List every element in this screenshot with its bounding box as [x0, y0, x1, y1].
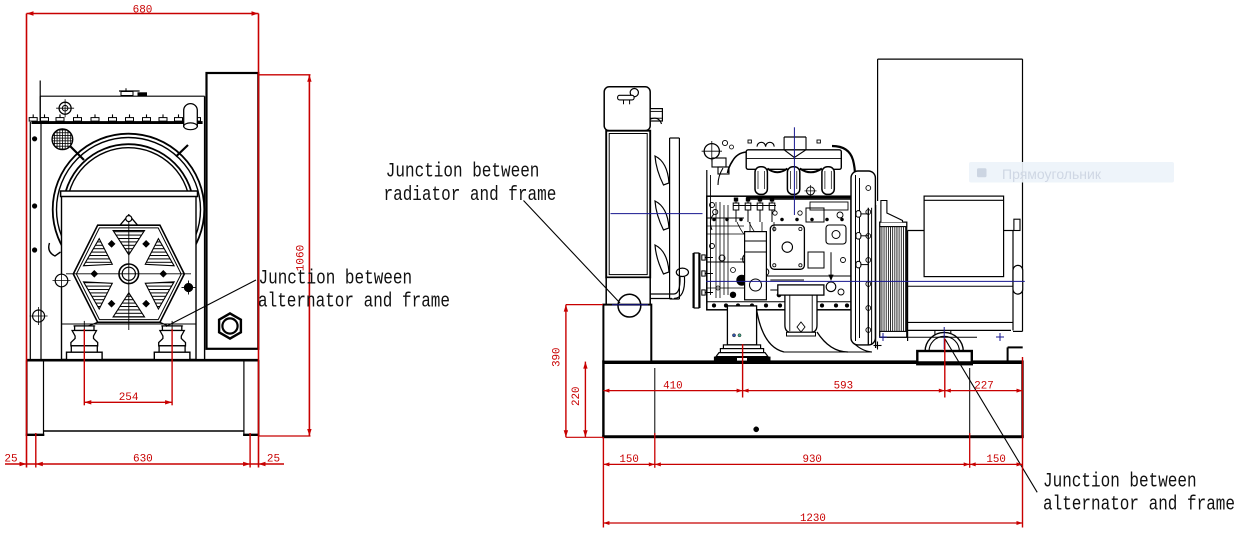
svg-text:680: 680 — [133, 4, 153, 16]
svg-text:220: 220 — [571, 387, 583, 406]
svg-text:930: 930 — [802, 454, 821, 466]
svg-text:alternator and frame: alternator and frame — [258, 291, 450, 314]
svg-text:254: 254 — [119, 392, 139, 404]
svg-text:25: 25 — [267, 454, 280, 466]
svg-text:390: 390 — [551, 347, 563, 366]
svg-text:227: 227 — [974, 381, 993, 393]
svg-text:410: 410 — [663, 381, 682, 393]
svg-text:1230: 1230 — [800, 513, 826, 525]
svg-text:150: 150 — [619, 454, 638, 466]
svg-text:Junction between: Junction between — [1043, 471, 1197, 494]
svg-text:alternator and frame: alternator and frame — [1043, 494, 1235, 517]
svg-text:630: 630 — [133, 454, 153, 466]
svg-text:Junction between: Junction between — [386, 161, 540, 184]
svg-text:radiator and frame: radiator and frame — [384, 184, 557, 207]
svg-text:Junction between: Junction between — [259, 268, 413, 291]
svg-text:150: 150 — [986, 454, 1005, 466]
svg-text:Прямоугольник: Прямоугольник — [1002, 166, 1102, 182]
svg-text:25: 25 — [4, 454, 17, 466]
svg-text:593: 593 — [834, 381, 853, 393]
